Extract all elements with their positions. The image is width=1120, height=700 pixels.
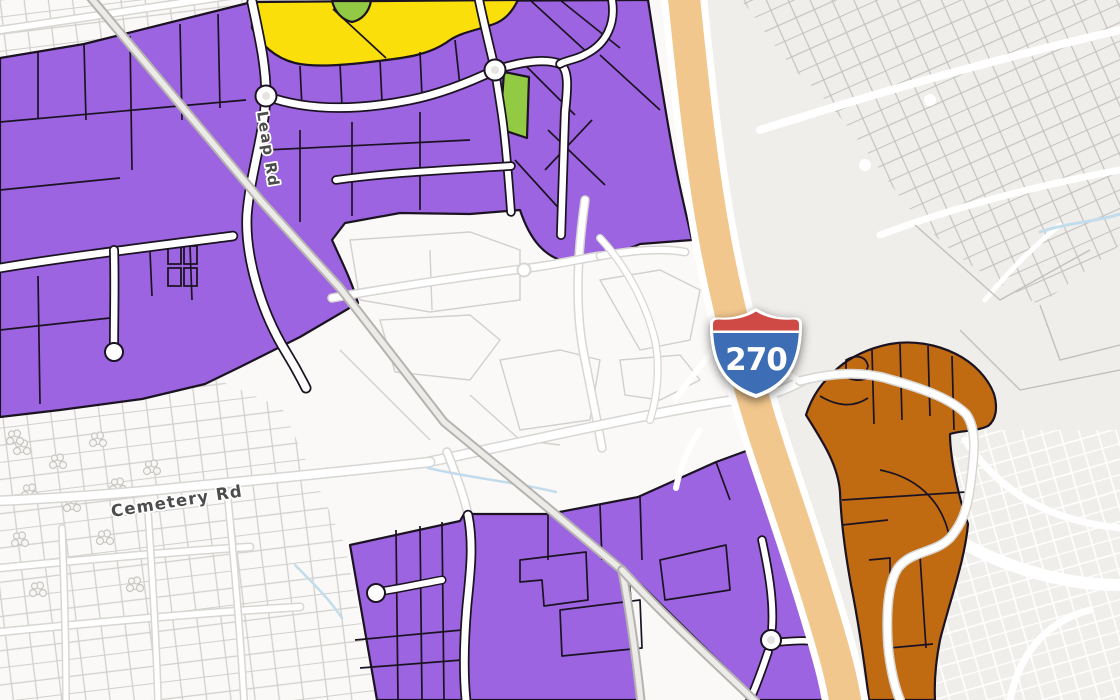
shield-route-number: 270 bbox=[725, 342, 787, 378]
map-canvas[interactable]: 270 Leap Rd Cemetery Rd bbox=[0, 0, 1120, 700]
roundabout bbox=[518, 264, 531, 277]
map-viewport[interactable]: 270 Leap Rd Cemetery Rd bbox=[0, 0, 1120, 700]
